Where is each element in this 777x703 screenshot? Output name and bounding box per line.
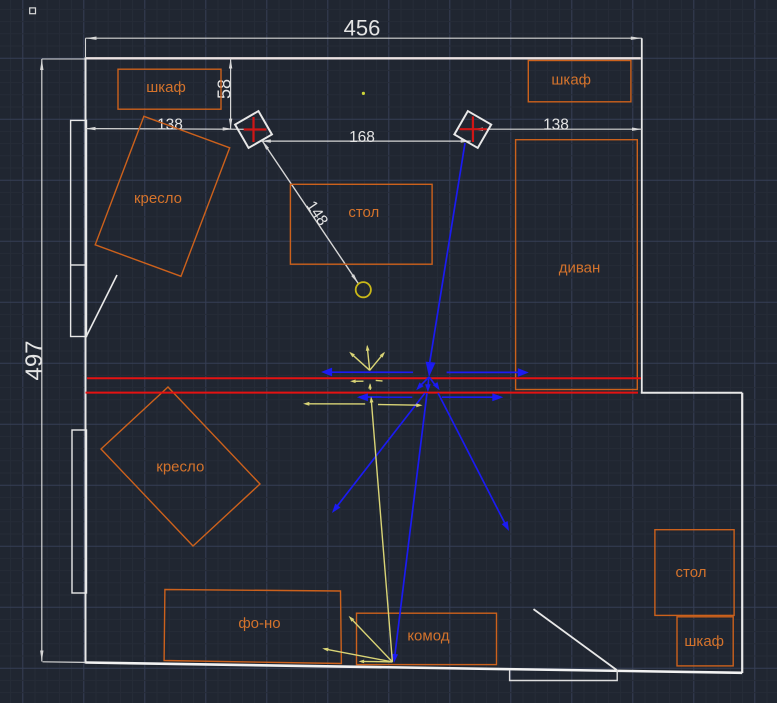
svg-text:кресло: кресло (134, 190, 182, 207)
svg-text:стол: стол (676, 564, 707, 581)
svg-text:диван: диван (559, 260, 601, 277)
svg-text:кресло: кресло (156, 459, 204, 476)
svg-text:497: 497 (21, 340, 48, 380)
svg-text:58: 58 (215, 79, 235, 99)
svg-text:фо-но: фо-но (238, 615, 280, 632)
svg-text:168: 168 (349, 129, 375, 146)
svg-text:шкаф: шкаф (684, 633, 724, 650)
svg-text:комод: комод (407, 627, 449, 644)
svg-text:138: 138 (157, 116, 183, 133)
svg-text:456: 456 (344, 16, 381, 41)
svg-text:138: 138 (543, 116, 569, 133)
svg-text:шкаф: шкаф (551, 72, 591, 89)
svg-text:стол: стол (348, 204, 379, 221)
svg-text:шкаф: шкаф (146, 79, 186, 96)
